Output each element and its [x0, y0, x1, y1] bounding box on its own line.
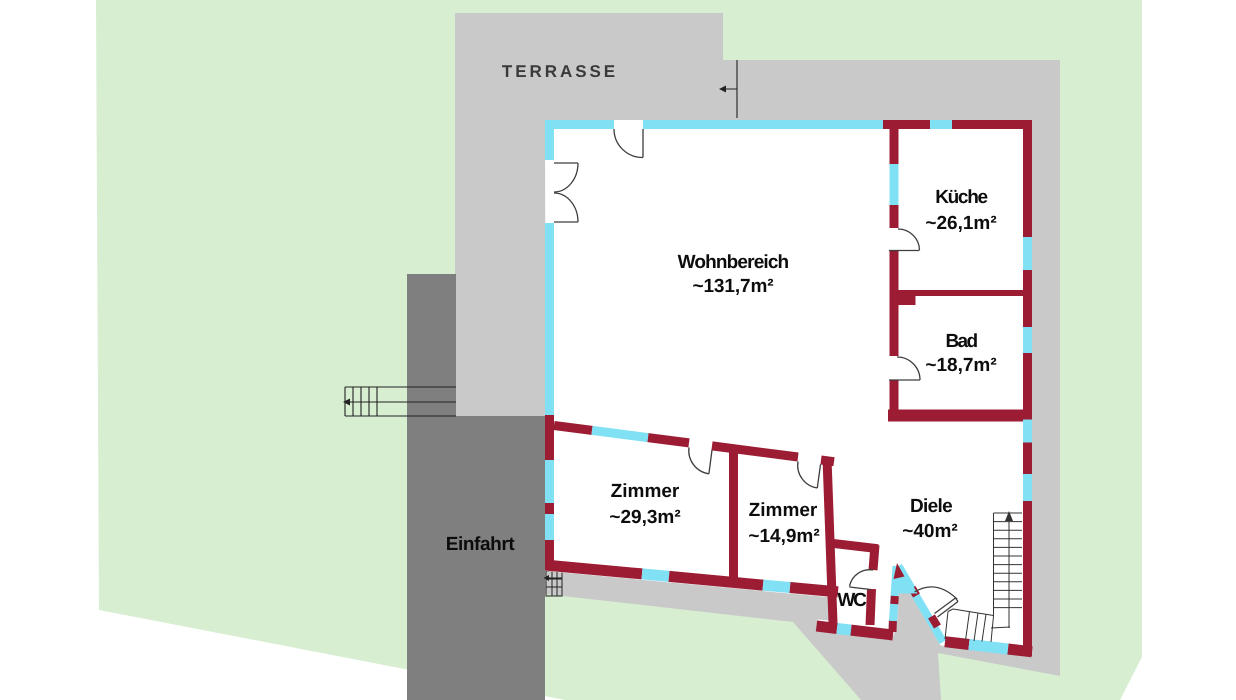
svg-text:WC: WC [837, 590, 867, 611]
svg-text:~40m²: ~40m² [902, 521, 957, 542]
svg-text:~18,7m²: ~18,7m² [925, 355, 996, 376]
svg-text:~131,7m²: ~131,7m² [692, 276, 773, 297]
svg-text:Bad: Bad [945, 331, 977, 352]
svg-text:Zimmer: Zimmer [611, 481, 680, 502]
svg-text:Zimmer: Zimmer [749, 500, 818, 521]
svg-text:Einfahrt: Einfahrt [446, 534, 516, 555]
svg-text:~29,3m²: ~29,3m² [609, 507, 680, 528]
svg-text:~14,9m²: ~14,9m² [748, 526, 819, 547]
svg-text:TERRASSE: TERRASSE [502, 62, 618, 81]
svg-text:~26,1m²: ~26,1m² [925, 213, 996, 234]
svg-text:Küche: Küche [935, 187, 987, 208]
svg-text:Wohnbereich: Wohnbereich [678, 252, 789, 273]
svg-text:Diele: Diele [910, 496, 952, 517]
